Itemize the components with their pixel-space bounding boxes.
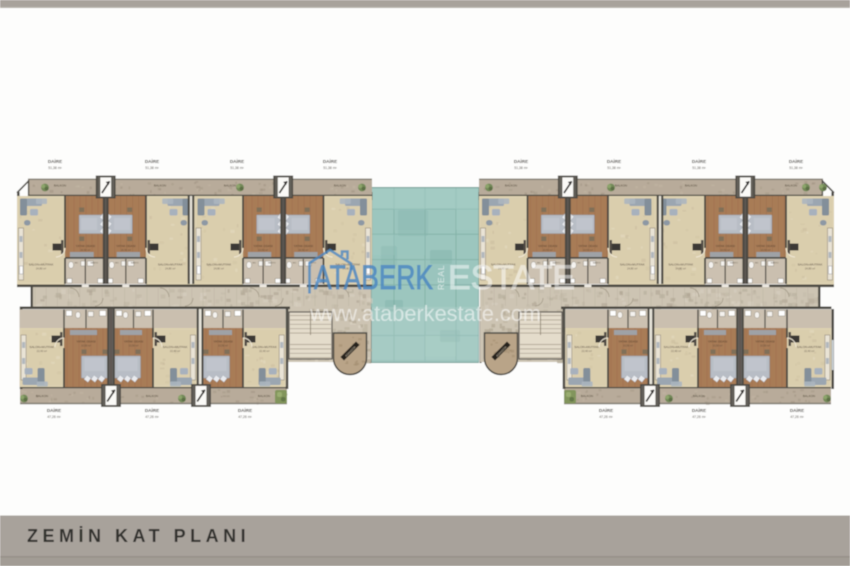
svg-text:ZEMİN KAT PLANI: ZEMİN KAT PLANI xyxy=(27,526,250,546)
svg-text:www.ataberkestate.com: www.ataberkestate.com xyxy=(309,301,541,326)
svg-text:REAL: REAL xyxy=(436,265,446,290)
svg-text:ESTATE: ESTATE xyxy=(448,259,575,297)
svg-text:ATABERK: ATABERK xyxy=(314,259,433,297)
